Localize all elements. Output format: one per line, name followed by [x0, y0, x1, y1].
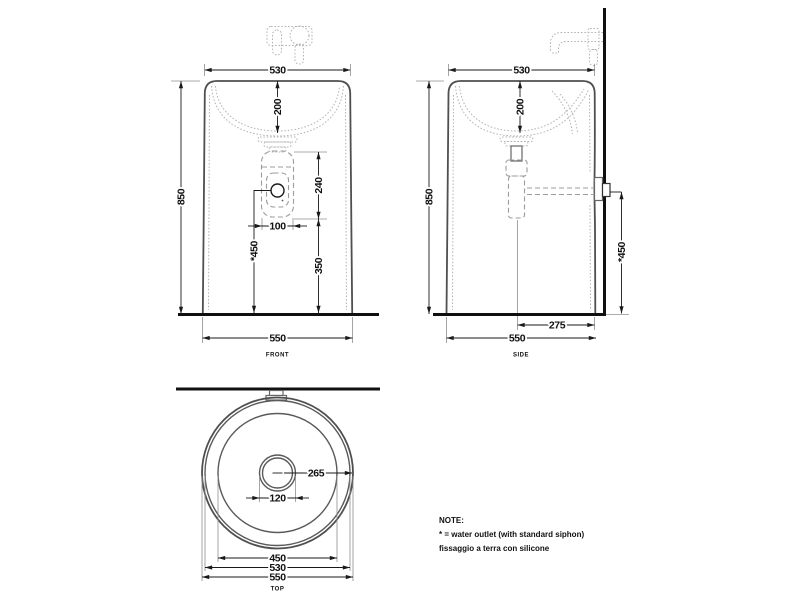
- washbasin-dimension-drawing: 530 850 200 240 100: [0, 0, 800, 600]
- dim-label-275: 275: [549, 320, 566, 332]
- water-outlet-mark: [271, 184, 284, 201]
- dim-label-550-side: 550: [509, 333, 526, 345]
- dim-front-bowl-depth: 200: [272, 81, 284, 133]
- dim-side-height: 850: [416, 81, 444, 314]
- top-view-label: TOP: [271, 587, 285, 593]
- siphon-side: [506, 160, 593, 330]
- note-block: NOTE: * = water outlet (with standard si…: [439, 516, 584, 553]
- dim-label-240: 240: [313, 177, 325, 194]
- dim-side-top-width: 530: [449, 64, 595, 77]
- front-view: 530 850 200 240 100: [171, 26, 379, 359]
- dim-side-base-width: 550: [447, 317, 597, 345]
- dim-label-530-side: 530: [513, 65, 530, 77]
- dim-front-top-width: 530: [205, 64, 351, 77]
- dim-side-outlet-height: *450: [610, 192, 628, 314]
- dim-label-850-side: 850: [424, 188, 436, 205]
- dim-label-550-top: 550: [269, 572, 286, 584]
- dim-label-120: 120: [269, 493, 286, 505]
- dim-front-drain-floor: 350: [313, 219, 325, 313]
- side-view-label: SIDE: [513, 353, 529, 359]
- bowl-side-detail: [456, 86, 589, 161]
- dim-top-bowl: 450: [218, 476, 337, 565]
- dim-label-450-side: *450: [616, 241, 628, 262]
- dim-label-530-front: 530: [269, 65, 286, 77]
- dim-label-350: 350: [313, 257, 325, 274]
- dim-label-200-side: 200: [515, 98, 527, 115]
- front-view-label: FRONT: [266, 353, 289, 359]
- dim-front-height: 850: [171, 81, 200, 314]
- faucet-front-icon: [267, 26, 312, 64]
- faucet-side-icon: [551, 29, 604, 66]
- dim-label-450-front: *450: [249, 240, 261, 261]
- dim-front-outlet-height: *450: [249, 191, 272, 314]
- dim-front-outlet-offset: 100: [248, 218, 307, 233]
- note-title: NOTE:: [439, 516, 464, 525]
- top-view: 265 120 450 530: [176, 389, 380, 593]
- technical-drawing-sheet: 530 850 200 240 100: [0, 0, 800, 600]
- dim-front-base-width: 550: [203, 317, 353, 345]
- dim-side-bowl-depth: 200: [515, 81, 527, 133]
- dim-label-550-front: 550: [269, 333, 286, 345]
- wall-outlet-fitting: [595, 178, 611, 201]
- dim-front-siphon-height: 240: [294, 152, 327, 219]
- dim-label-850-front: 850: [176, 188, 188, 205]
- side-view: 530 850 200 *450 275 550: [416, 8, 629, 359]
- dim-label-200-front: 200: [272, 98, 284, 115]
- dim-label-100: 100: [269, 221, 286, 233]
- dim-top-drain: 120: [246, 476, 309, 505]
- dim-label-265: 265: [308, 468, 325, 480]
- note-line-1: * = water outlet (with standard siphon): [439, 530, 584, 539]
- dim-side-outlet-wall: 275: [518, 317, 595, 332]
- note-line-2: fissaggio a terra con silicone: [439, 544, 550, 553]
